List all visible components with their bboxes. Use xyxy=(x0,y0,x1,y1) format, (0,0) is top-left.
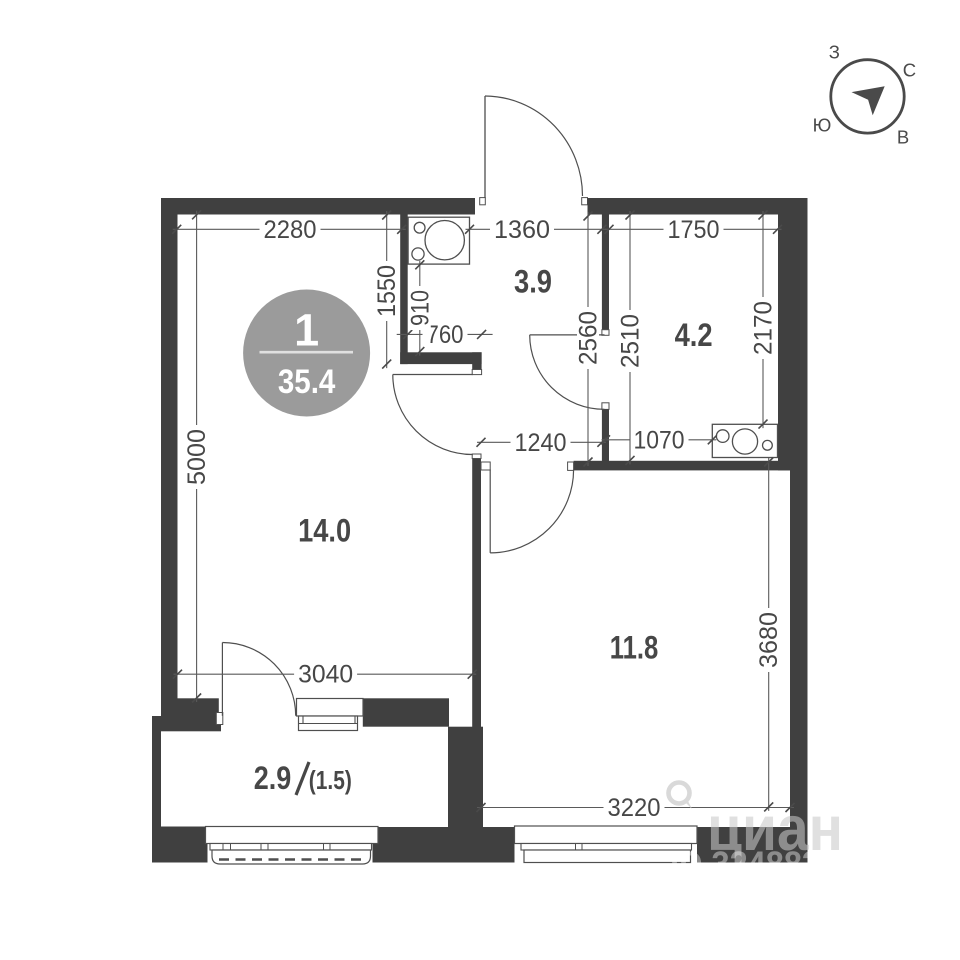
svg-text:5000: 5000 xyxy=(183,429,211,485)
svg-text:1550: 1550 xyxy=(373,265,401,317)
svg-text:Ю: Ю xyxy=(813,115,832,136)
svg-text:1240: 1240 xyxy=(515,429,567,457)
svg-text:4.2: 4.2 xyxy=(675,317,713,353)
svg-text:3040: 3040 xyxy=(298,661,353,689)
svg-text:2560: 2560 xyxy=(575,311,603,365)
svg-text:1: 1 xyxy=(294,305,319,356)
svg-text:1070: 1070 xyxy=(634,426,685,454)
svg-text:910: 910 xyxy=(406,290,434,326)
svg-text:11.8: 11.8 xyxy=(610,630,659,666)
svg-text:ID 324883: ID 324883 xyxy=(670,845,820,884)
svg-text:35.4: 35.4 xyxy=(278,363,336,401)
svg-text:1750: 1750 xyxy=(668,216,720,244)
svg-text:З: З xyxy=(829,41,840,62)
svg-text:В: В xyxy=(897,127,909,148)
svg-text:3680: 3680 xyxy=(755,612,783,668)
svg-text:1360: 1360 xyxy=(494,216,550,244)
svg-text:(1.5): (1.5) xyxy=(309,765,352,795)
svg-text:14.0: 14.0 xyxy=(298,512,351,548)
svg-text:2170: 2170 xyxy=(750,301,778,355)
svg-text:2.9: 2.9 xyxy=(254,760,291,796)
svg-text:2510: 2510 xyxy=(617,314,645,368)
svg-text:3220: 3220 xyxy=(608,794,661,822)
svg-text:С: С xyxy=(903,60,916,81)
svg-text:3.9: 3.9 xyxy=(514,264,552,300)
svg-text:2280: 2280 xyxy=(264,216,317,244)
